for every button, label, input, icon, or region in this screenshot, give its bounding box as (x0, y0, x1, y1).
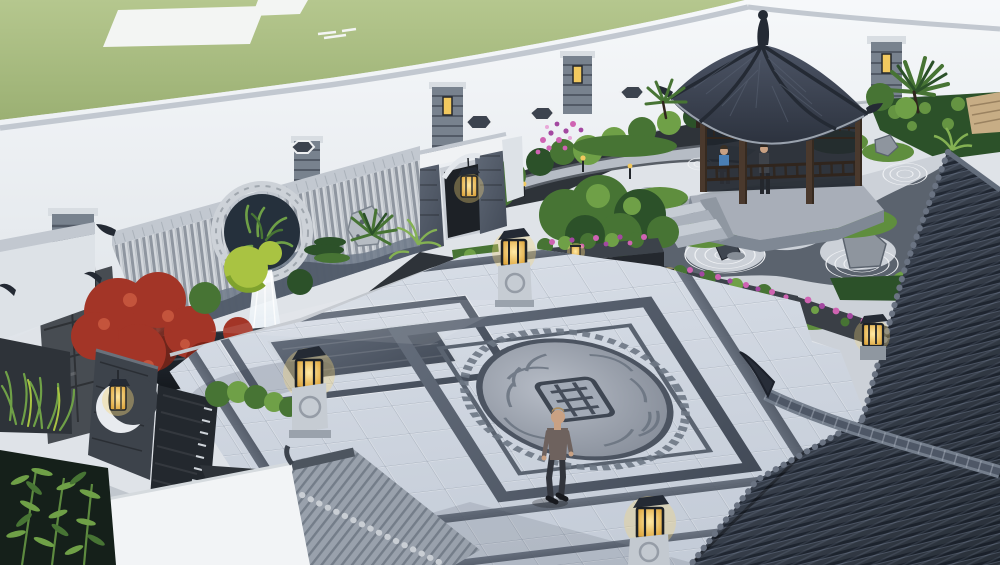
pillar-lantern-niche (443, 97, 452, 115)
wall-pillar (560, 51, 595, 114)
hex-window (530, 107, 554, 120)
lawn-concrete-patch (103, 6, 265, 47)
stone-lantern (624, 495, 676, 565)
garden-render: Chinese courtyard garden - aerial 3D lan… (0, 0, 1000, 565)
person-torso (547, 428, 568, 460)
hex-window (291, 141, 314, 153)
hex-window (620, 86, 644, 99)
garden-render-stage: Chinese courtyard garden - aerial 3D lan… (0, 0, 1000, 565)
wall-pillar (429, 82, 466, 151)
hex-window (466, 115, 492, 129)
pillar-lantern-niche (882, 54, 891, 73)
stone-lantern (492, 228, 536, 307)
person-head (551, 410, 565, 424)
crescent-moon-wall (88, 350, 158, 480)
lawn-concrete-patch (252, 0, 308, 16)
bamboo (0, 450, 116, 565)
shrub (895, 97, 917, 119)
pillar-lantern-niche (573, 66, 582, 83)
